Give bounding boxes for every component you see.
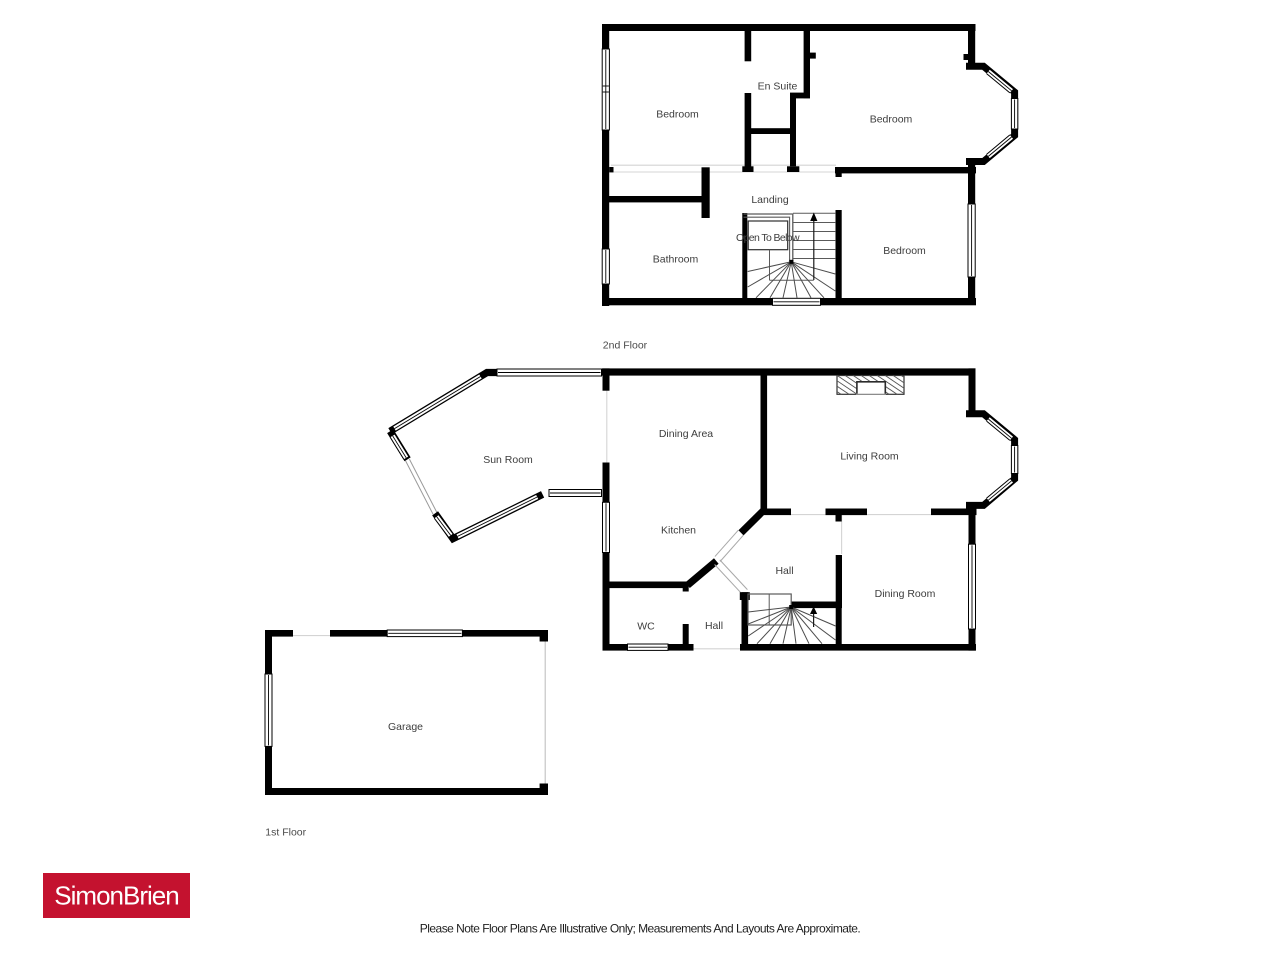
svg-text:1st Floor: 1st Floor bbox=[265, 826, 306, 838]
svg-text:Hall: Hall bbox=[705, 620, 723, 632]
svg-text:Bathroom: Bathroom bbox=[653, 253, 699, 265]
svg-text:Garage: Garage bbox=[388, 721, 423, 733]
svg-text:Landing: Landing bbox=[751, 194, 789, 206]
svg-text:Living Room: Living Room bbox=[840, 451, 899, 463]
svg-text:WC: WC bbox=[637, 621, 655, 633]
svg-text:Dining Area: Dining Area bbox=[659, 428, 713, 440]
svg-text:2nd Floor: 2nd Floor bbox=[603, 340, 648, 352]
svg-text:Bedroom: Bedroom bbox=[870, 114, 913, 126]
svg-text:SimonBrien: SimonBrien bbox=[54, 881, 178, 911]
svg-text:Bedroom: Bedroom bbox=[656, 109, 699, 121]
svg-text:Hall: Hall bbox=[775, 565, 793, 577]
svg-text:Please Note Floor Plans Are Il: Please Note Floor Plans Are Illustrative… bbox=[420, 922, 861, 936]
svg-text:Dining Room: Dining Room bbox=[875, 588, 936, 600]
svg-text:Sun Room: Sun Room bbox=[483, 454, 533, 466]
svg-text:En Suite: En Suite bbox=[758, 80, 798, 92]
svg-text:Kitchen: Kitchen bbox=[661, 525, 696, 537]
svg-text:Open To Below: Open To Below bbox=[736, 232, 800, 244]
svg-text:Bedroom: Bedroom bbox=[883, 245, 926, 257]
